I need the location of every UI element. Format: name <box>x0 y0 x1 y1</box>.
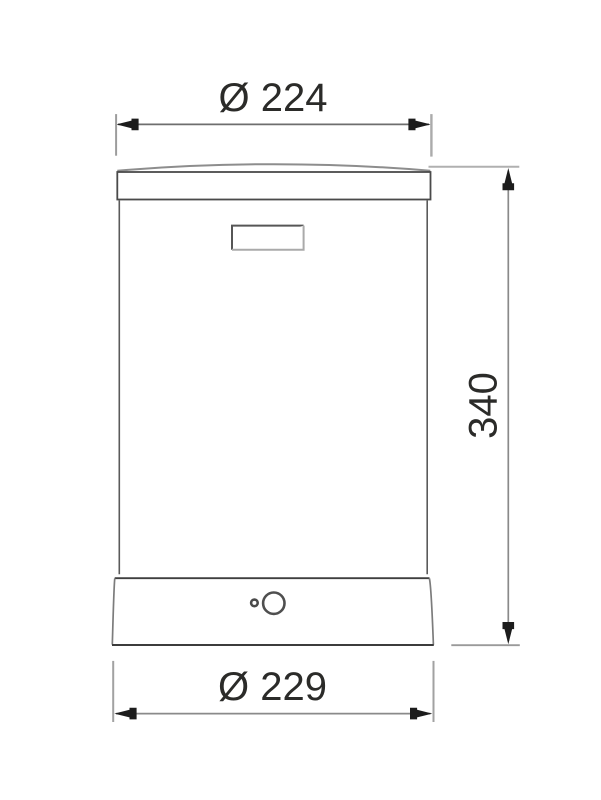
svg-text:Ø 229: Ø 229 <box>218 665 327 709</box>
svg-text:Ø 224: Ø 224 <box>219 76 328 120</box>
svg-text:340: 340 <box>462 372 506 439</box>
